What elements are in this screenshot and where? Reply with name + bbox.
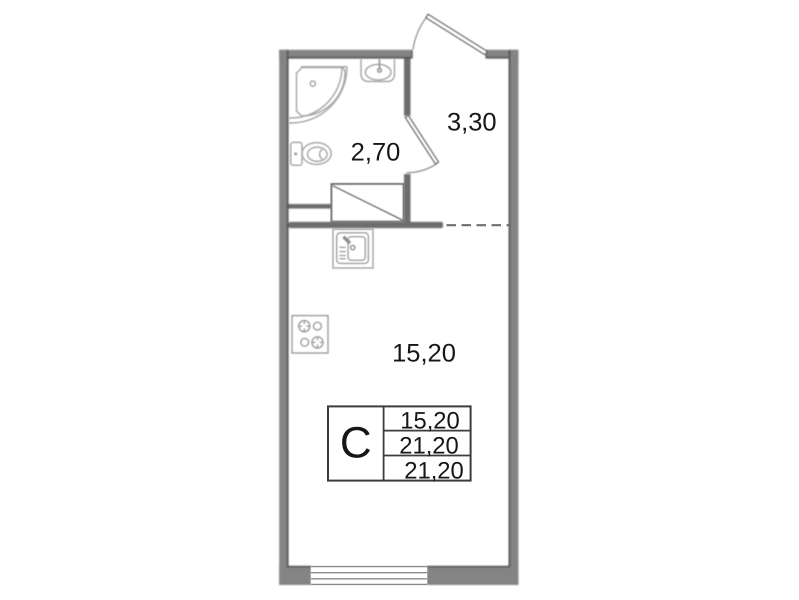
svg-text:15,20: 15,20 bbox=[392, 339, 456, 367]
svg-text:С: С bbox=[340, 419, 372, 468]
svg-text:21,20: 21,20 bbox=[404, 458, 464, 485]
svg-text:3,30: 3,30 bbox=[447, 108, 497, 136]
svg-text:2,70: 2,70 bbox=[351, 139, 401, 167]
svg-text:15,20: 15,20 bbox=[400, 408, 460, 435]
svg-text:21,20: 21,20 bbox=[399, 433, 459, 460]
